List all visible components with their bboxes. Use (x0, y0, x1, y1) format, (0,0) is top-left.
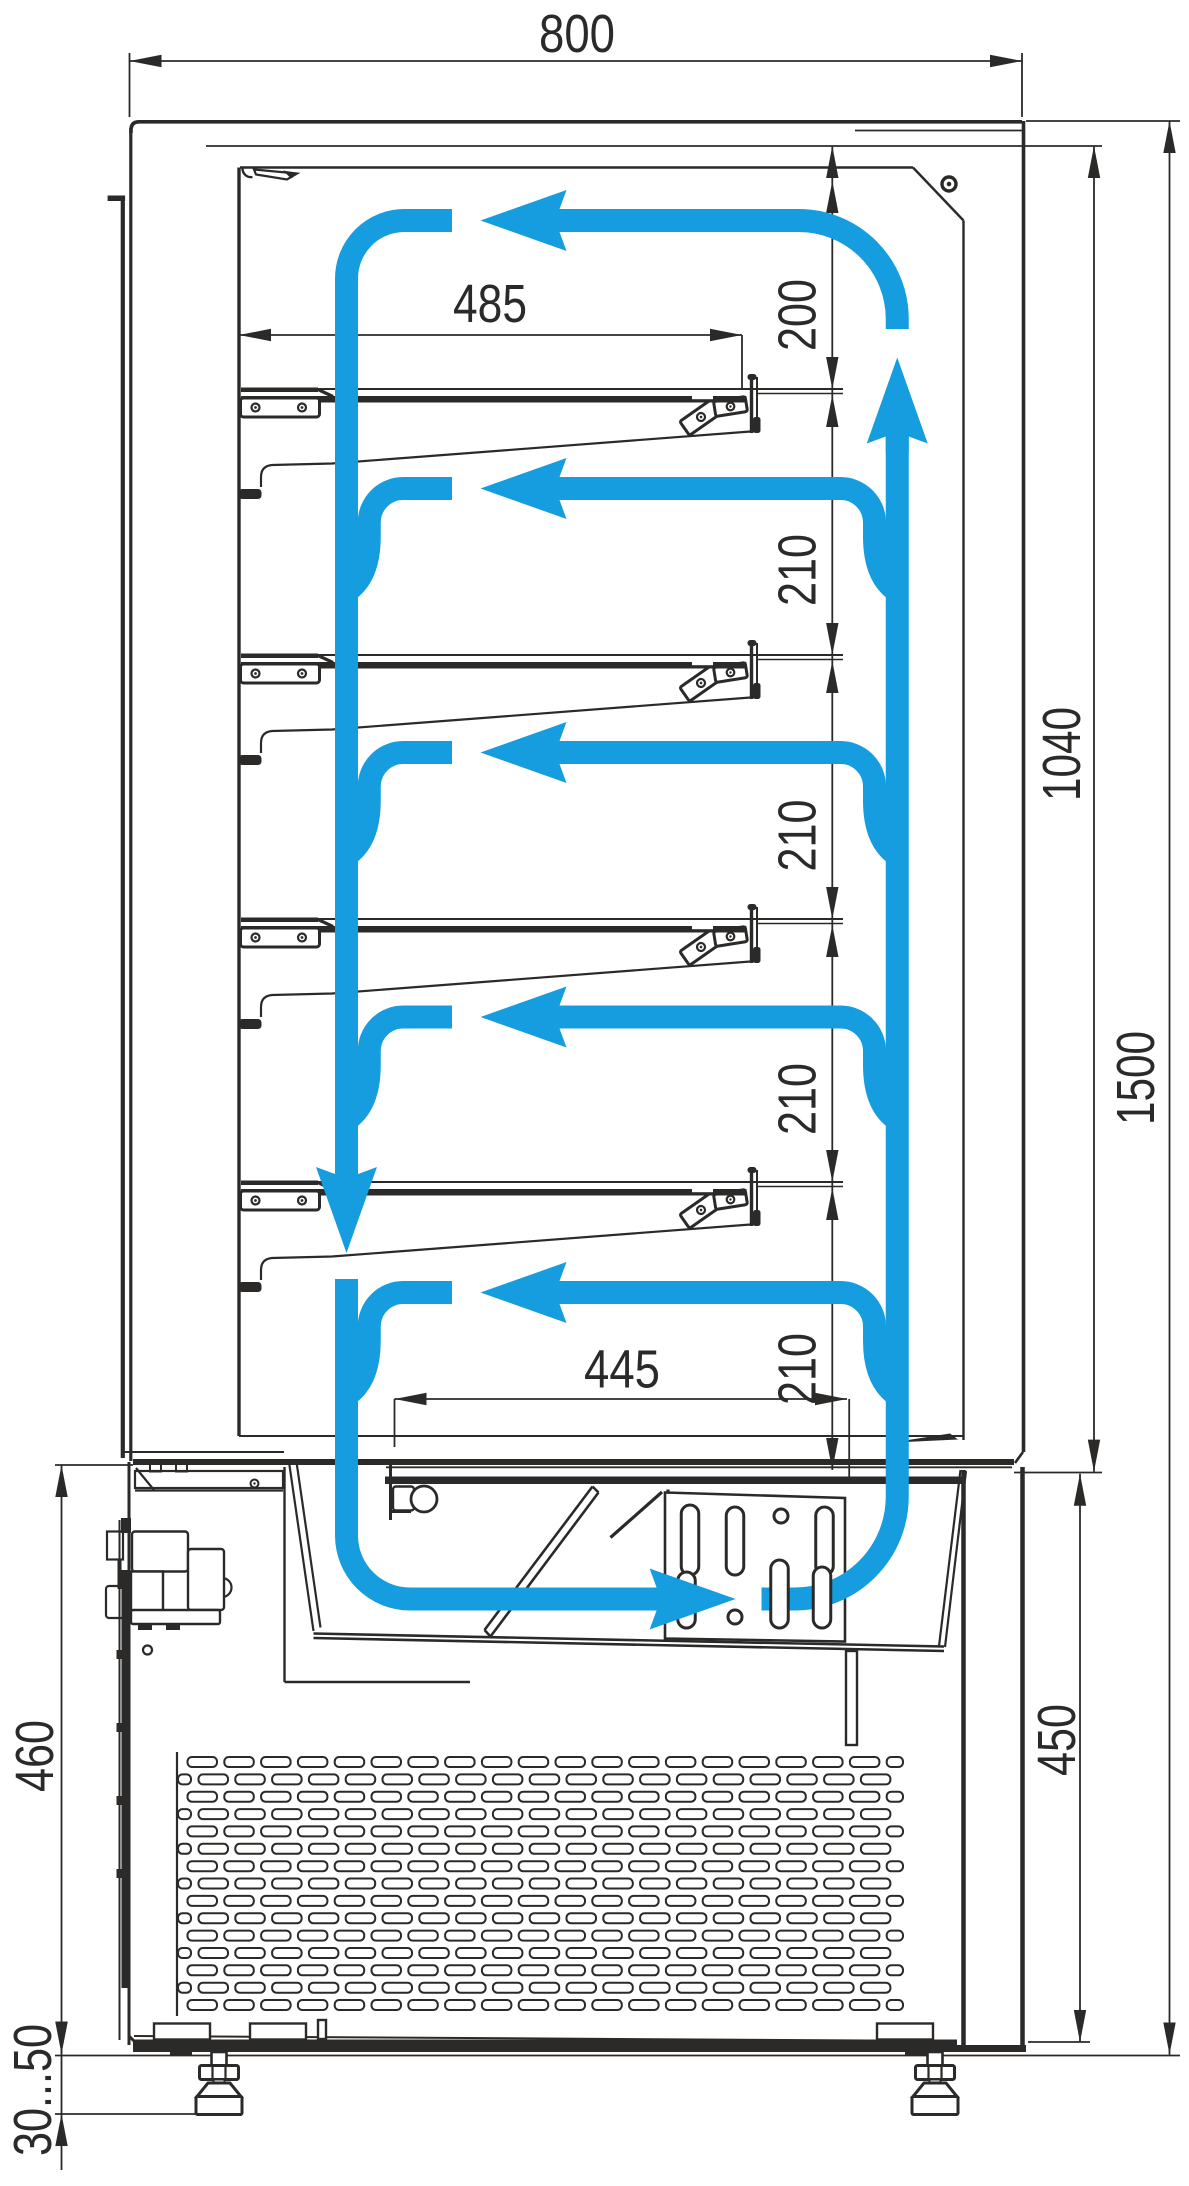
svg-text:450: 450 (1027, 1704, 1087, 1776)
svg-text:460: 460 (5, 1720, 65, 1792)
svg-text:485: 485 (453, 274, 527, 334)
svg-text:210: 210 (768, 800, 828, 872)
svg-text:1500: 1500 (1106, 1031, 1166, 1125)
svg-text:800: 800 (539, 4, 615, 64)
svg-text:30...50: 30...50 (3, 2024, 63, 2156)
svg-text:445: 445 (584, 1340, 660, 1400)
svg-text:1040: 1040 (1032, 707, 1092, 801)
svg-text:210: 210 (768, 1063, 828, 1135)
svg-text:210: 210 (768, 534, 828, 606)
svg-text:200: 200 (768, 279, 828, 351)
